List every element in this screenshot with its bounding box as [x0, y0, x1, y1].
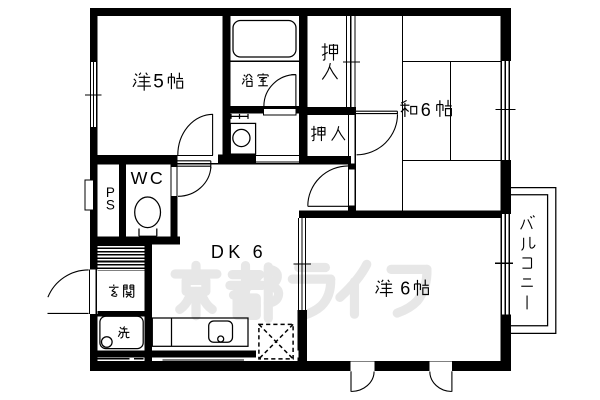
svg-text:D: D: [211, 242, 224, 262]
svg-text:6: 6: [253, 242, 263, 262]
svg-text:C: C: [150, 168, 163, 188]
svg-text:6: 6: [421, 100, 431, 120]
svg-text:6: 6: [400, 279, 410, 299]
svg-text:5: 5: [153, 72, 164, 93]
svg-text:S: S: [106, 198, 115, 213]
svg-text:K: K: [228, 242, 240, 262]
svg-text:W: W: [131, 168, 148, 188]
